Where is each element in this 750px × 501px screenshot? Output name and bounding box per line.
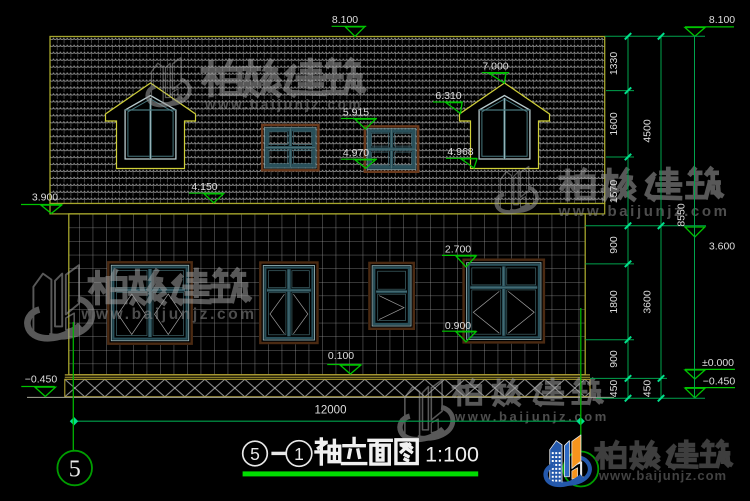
svg-text:4.968: 4.968 [447,146,473,158]
svg-text:8.100: 8.100 [332,14,358,26]
svg-text:1330: 1330 [608,52,620,76]
svg-text:www.baijunjz.com: www.baijunjz.com [204,97,363,112]
svg-text:7.000: 7.000 [482,61,508,73]
svg-text:4500: 4500 [642,119,654,143]
svg-text:5: 5 [69,457,81,483]
svg-text:www.baijunjz.com: www.baijunjz.com [557,203,729,220]
svg-text:0.100: 0.100 [328,350,354,362]
svg-text:900: 900 [608,236,620,254]
svg-text:5.915: 5.915 [343,107,369,119]
svg-text:3600: 3600 [642,290,654,314]
svg-text:2.700: 2.700 [445,244,471,256]
svg-text:3.900: 3.900 [32,192,58,204]
svg-text:4.970: 4.970 [343,147,369,159]
svg-text:12000: 12000 [315,405,347,417]
svg-text:1: 1 [294,444,304,464]
svg-text:8550: 8550 [676,203,688,227]
svg-text:900: 900 [608,350,620,368]
svg-text:8.100: 8.100 [709,14,735,26]
svg-text:0.900: 0.900 [445,320,471,332]
svg-text:−0.450: −0.450 [703,376,736,388]
svg-text:4.150: 4.150 [191,181,217,193]
svg-text:1600: 1600 [608,112,620,136]
svg-text:3.600: 3.600 [709,241,735,253]
svg-text:1800: 1800 [608,290,620,314]
svg-text:450: 450 [642,380,654,398]
svg-text:−0.450: −0.450 [25,374,58,386]
svg-text:1:100: 1:100 [425,443,479,467]
svg-text:±0.000: ±0.000 [702,357,734,369]
svg-text:6.310: 6.310 [435,90,461,102]
svg-text:www.baijunjz.com: www.baijunjz.com [80,306,256,323]
svg-text:www.baijunjz.com: www.baijunjz.com [598,468,727,483]
svg-text:1570: 1570 [608,180,620,204]
svg-text:450: 450 [608,380,620,398]
svg-text:5: 5 [250,444,260,464]
